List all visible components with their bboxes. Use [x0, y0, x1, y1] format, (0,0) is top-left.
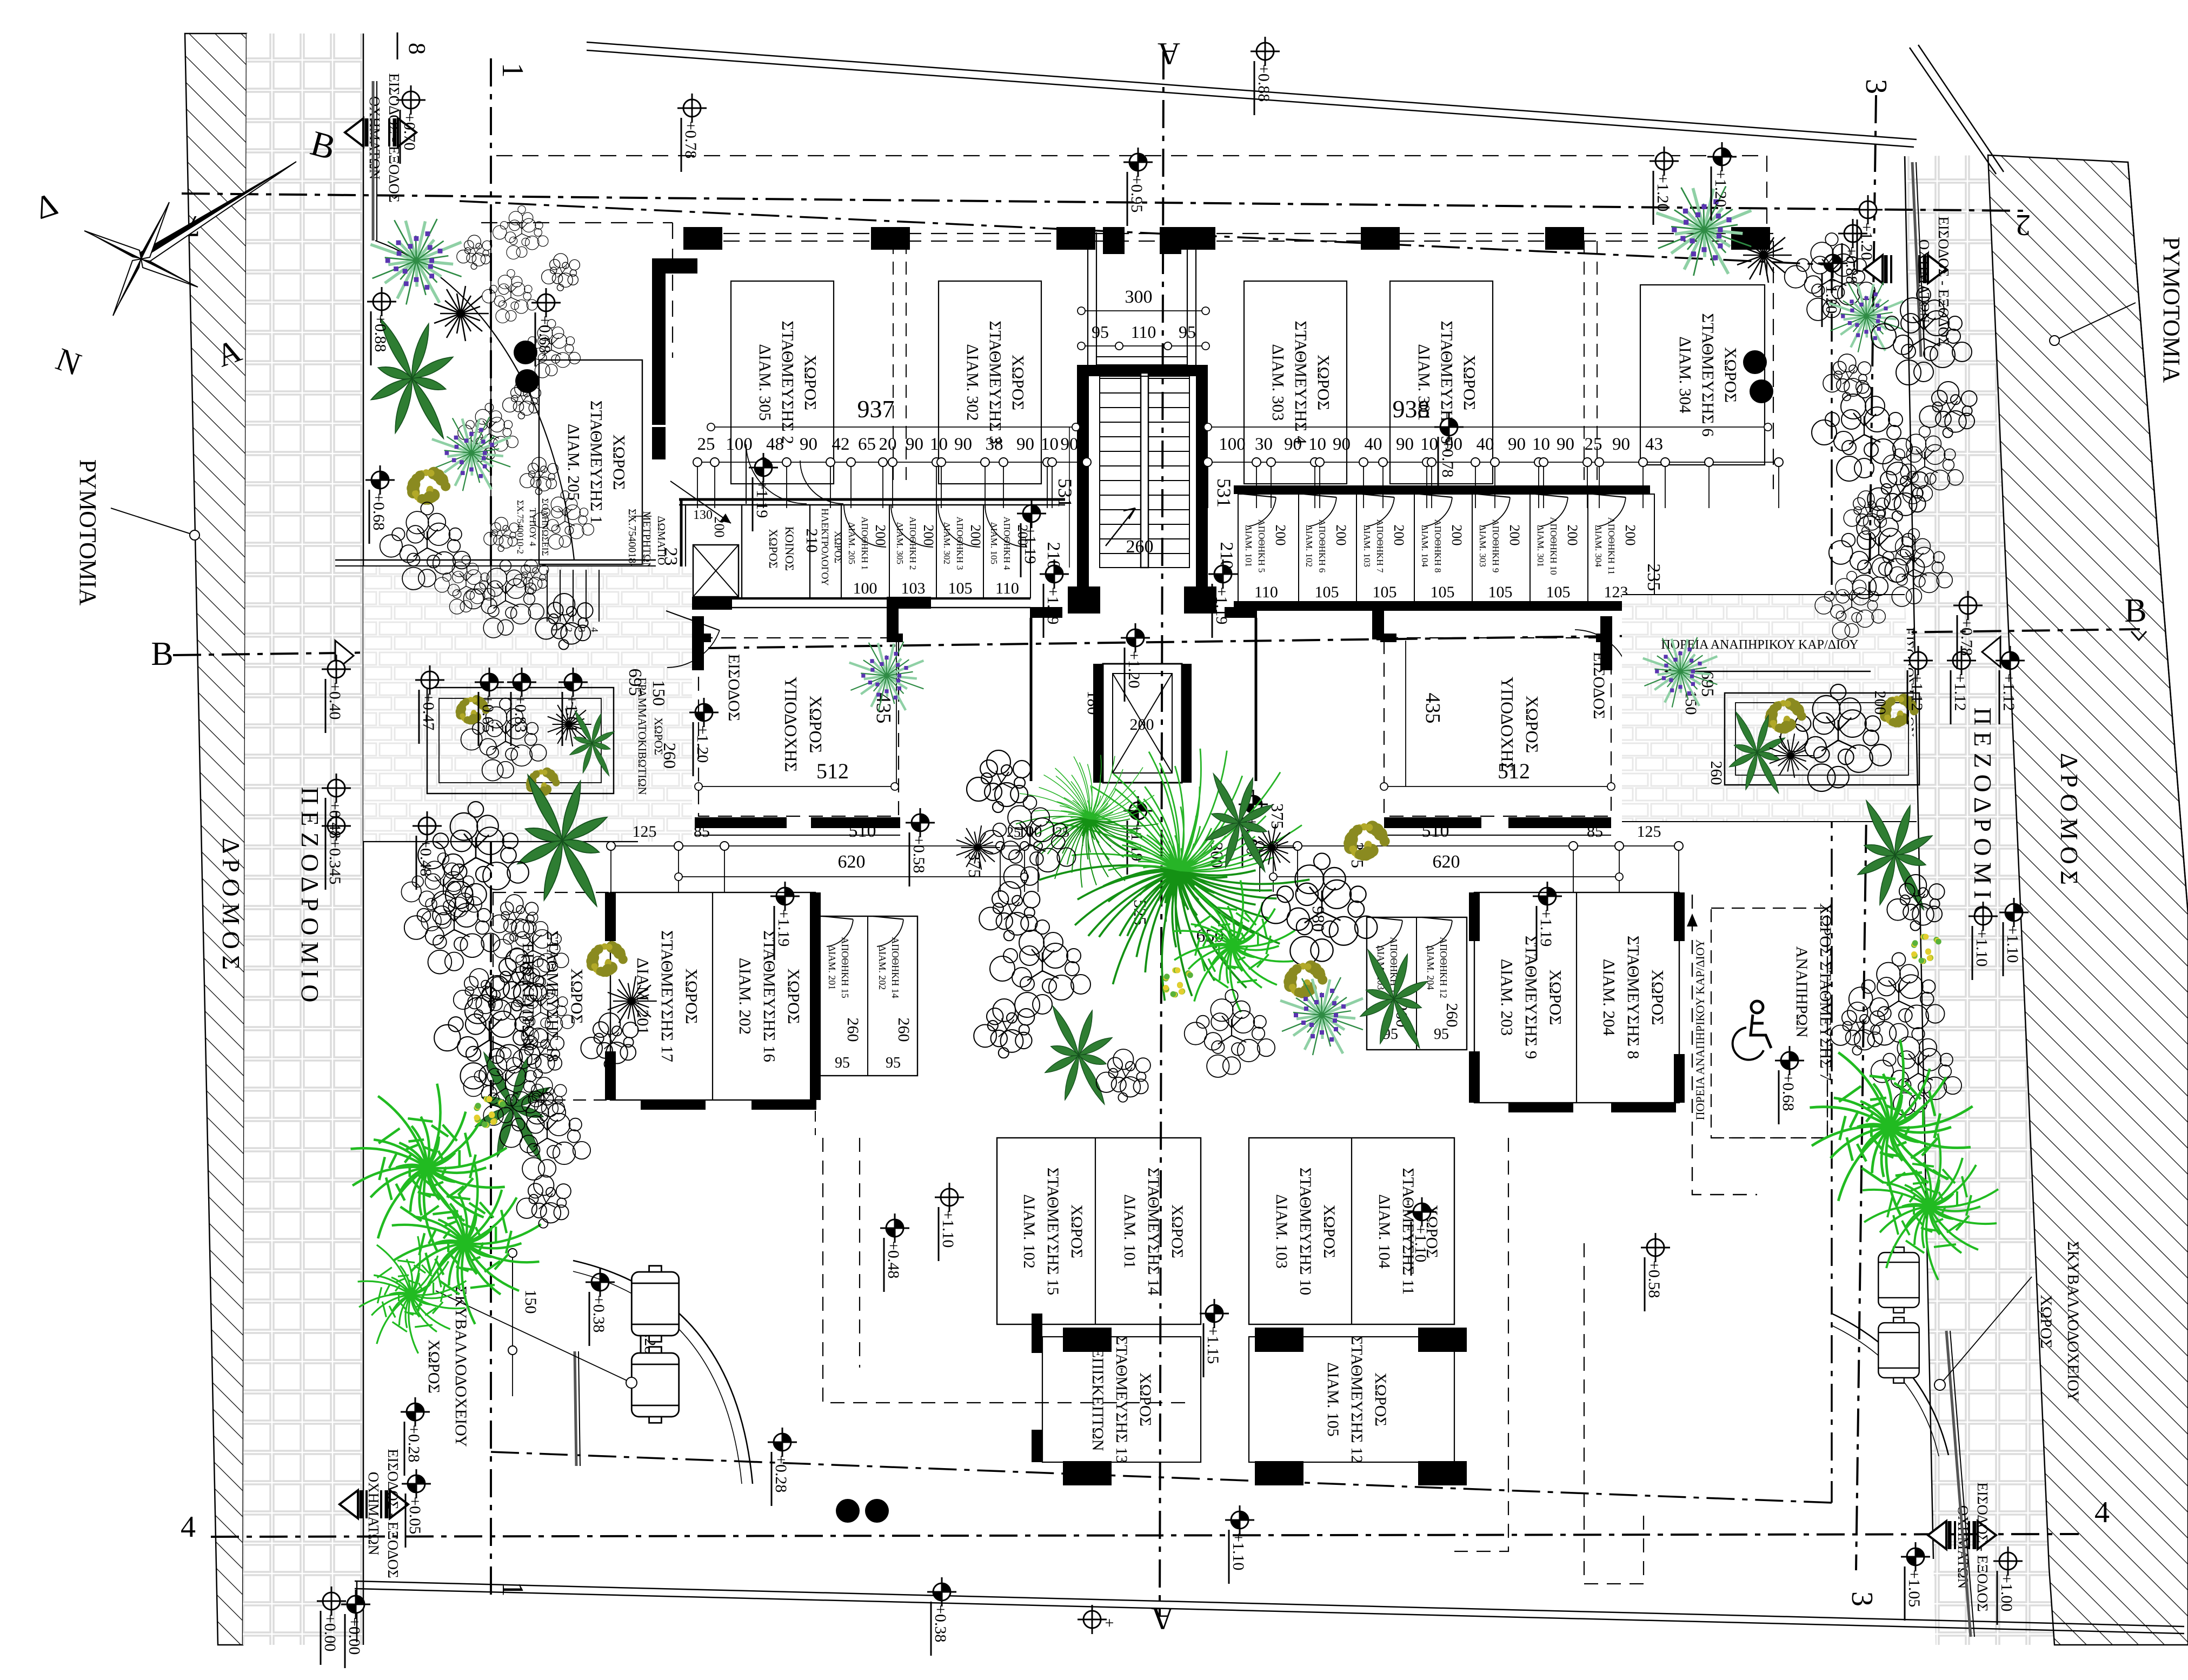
svg-text:ΕΙΣΟΔΟΣ: ΕΙΣΟΔΟΣ	[725, 654, 743, 722]
svg-text:ΔΙΑΜ. 303: ΔΙΑΜ. 303	[1269, 344, 1288, 421]
svg-text:200: 200	[1449, 525, 1465, 546]
svg-text:+1.10: +1.10	[1412, 1225, 1429, 1262]
svg-text:260: 260	[660, 743, 680, 769]
svg-text:105: 105	[1546, 583, 1571, 601]
svg-text:938: 938	[1393, 395, 1430, 423]
svg-text:125: 125	[1637, 823, 1661, 841]
svg-text:ΧΩΡΟΣ: ΧΩΡΟΣ	[784, 968, 803, 1024]
svg-text:105: 105	[1431, 583, 1455, 601]
svg-text:150: 150	[649, 680, 669, 706]
svg-text:ΑΠΟΘΗΚΗ 9: ΑΠΟΘΗΚΗ 9	[1491, 519, 1501, 573]
svg-text:+0.48: +0.48	[884, 1241, 902, 1278]
svg-text:150: 150	[522, 1290, 540, 1314]
svg-text:25: 25	[697, 435, 715, 454]
svg-text:+0.95: +0.95	[1128, 175, 1146, 212]
svg-text:ΔΙΑΜ. 203: ΔΙΑΜ. 203	[1498, 959, 1517, 1036]
svg-text:ΜΕΤΡΗΤΩΝ: ΜΕΤΡΗΤΩΝ	[641, 511, 653, 570]
svg-text:65: 65	[858, 435, 876, 454]
svg-text:130: 130	[693, 508, 713, 522]
svg-text:ΟΧΗΜΑΤΩΝ: ΟΧΗΜΑΤΩΝ	[367, 96, 383, 180]
svg-text:4: 4	[181, 1510, 196, 1544]
svg-text:90: 90	[1284, 435, 1302, 454]
svg-text:+0.78: +0.78	[1958, 618, 1976, 656]
svg-text:200: 200	[711, 517, 727, 538]
svg-text:ΑΠΟΘΗΚΗ 12: ΑΠΟΘΗΚΗ 12	[1438, 937, 1449, 998]
svg-text:695: 695	[625, 669, 645, 696]
svg-text:260: 260	[895, 1018, 913, 1042]
svg-text:512: 512	[1498, 759, 1530, 783]
svg-text:300: 300	[1125, 287, 1153, 307]
svg-text:+0.65: +0.65	[479, 695, 497, 732]
svg-text:+0.48: +0.48	[326, 801, 344, 838]
svg-text:30: 30	[1255, 435, 1273, 454]
svg-text:+1.19: +1.19	[753, 481, 771, 518]
svg-text:ΔΙΑΜ. 103: ΔΙΑΜ. 103	[1362, 525, 1372, 567]
svg-text:260: 260	[1126, 537, 1154, 557]
svg-text:100: 100	[1219, 435, 1246, 454]
svg-text:ΔΙΑΜ. 304: ΔΙΑΜ. 304	[1676, 336, 1695, 414]
svg-text:Π Ε Ζ Ο Δ Ρ Ο Μ Ι Ο: Π Ε Ζ Ο Δ Ρ Ο Μ Ι Ο	[1969, 708, 1997, 923]
svg-text:+1.05: +1.05	[1905, 1570, 1923, 1607]
svg-text:ΣΚΥΒΑΛΛΟΔΟΧΕΙΟΥ: ΣΚΥΒΑΛΛΟΔΟΧΕΙΟΥ	[2064, 1241, 2082, 1402]
svg-text:ΣΤΑΘΜΕΥΣΗΣ 8: ΣΤΑΘΜΕΥΣΗΣ 8	[1624, 936, 1643, 1059]
svg-text:ΧΩΡΟΣ: ΧΩΡΟΣ	[610, 434, 629, 490]
svg-text:ΕΙΣΟΔΟΣ - ΕΞΟΔΟΣ: ΕΙΣΟΔΟΣ - ΕΞΟΔΟΣ	[1974, 1482, 1991, 1611]
svg-text:+1.12: +1.12	[1908, 674, 1926, 711]
svg-text:ΑΠΟΘΗΚΗ 6: ΑΠΟΘΗΚΗ 6	[1317, 519, 1327, 573]
svg-text:2: 2	[2016, 208, 2031, 242]
svg-text:ΧΩΡΟΣ: ΧΩΡΟΣ	[1648, 969, 1667, 1025]
svg-text:3: 3	[1859, 79, 1893, 94]
svg-text:38: 38	[986, 435, 1003, 454]
svg-text:260: 260	[1443, 1003, 1461, 1028]
svg-text:ΧΩΡΟΣ: ΧΩΡΟΣ	[2037, 1295, 2055, 1349]
svg-text:1: 1	[496, 1582, 529, 1597]
svg-text:+1.10: +1.10	[2004, 925, 2021, 963]
svg-text:ΣΧ.7540018-5: ΣΧ.7540018-5	[626, 509, 638, 572]
svg-text:510: 510	[1422, 821, 1449, 841]
svg-text:ΔΙΑΜ. 205: ΔΙΑΜ. 205	[847, 522, 857, 564]
svg-text:ΡΥΜΟΤΟΜΙΑ: ΡΥΜΟΤΟΜΙΑ	[75, 459, 101, 606]
svg-text:Δ Ρ Ο Μ Ο Σ: Δ Ρ Ο Μ Ο Σ	[217, 838, 245, 970]
svg-text:ΧΩΡΟΣ: ΧΩΡΟΣ	[682, 968, 701, 1024]
svg-text:105: 105	[1315, 583, 1339, 601]
svg-text:ΣΤΑΘΜΕΥΣΗΣ 1: ΣΤΑΘΜΕΥΣΗΣ 1	[587, 401, 606, 524]
svg-text:ΕΠΙΣΚΕΠΤΩΝ: ΕΠΙΣΚΕΠΤΩΝ	[1089, 1348, 1107, 1451]
svg-text:ΥΠΟΔΟΧΗΣ: ΥΠΟΔΟΧΗΣ	[781, 677, 801, 772]
svg-text:ΑΝΑΠΗΡΩΝ: ΑΝΑΠΗΡΩΝ	[1793, 946, 1811, 1038]
svg-text:+0.88: +0.88	[371, 315, 389, 352]
svg-text:ΣΤΑΘΜΕΥΣΗΣ 17: ΣΤΑΘΜΕΥΣΗΣ 17	[658, 930, 677, 1062]
svg-text:ΧΩΡΟΣ: ΧΩΡΟΣ	[1320, 1204, 1338, 1258]
svg-text:531: 531	[1213, 478, 1235, 508]
svg-text:ΔΙΑΜ. 104: ΔΙΑΜ. 104	[1375, 1194, 1393, 1269]
svg-text:+1.20: +1.20	[1712, 170, 1730, 207]
svg-text:ΑΠΟΘΗΚΗ 5: ΑΠΟΘΗΚΗ 5	[1256, 519, 1267, 573]
svg-text:10: 10	[1532, 435, 1550, 454]
svg-text:ΔΙΑΜ. 304: ΔΙΑΜ. 304	[1593, 525, 1604, 567]
svg-text:ΔΙΑΜ. 303: ΔΙΑΜ. 303	[1478, 525, 1488, 567]
svg-text:ΑΠΟΘΗΚΗ 7: ΑΠΟΘΗΚΗ 7	[1375, 519, 1385, 573]
svg-text:ΣΤΑΘΜΕΥΣΗΣ 3: ΣΤΑΘΜΕΥΣΗΣ 3	[986, 321, 1005, 444]
svg-text:200: 200	[921, 525, 936, 546]
svg-text:100: 100	[853, 579, 877, 597]
svg-text:ΠΟΡΕΙΑ ΑΝΑΠΗΡΙΚΟΥ ΚΑΡ/ΔΙΟΥ: ΠΟΡΕΙΑ ΑΝΑΠΗΡΙΚΟΥ ΚΑΡ/ΔΙΟΥ	[1693, 939, 1707, 1121]
svg-text:ΔΙΑΜ. 302: ΔΙΑΜ. 302	[963, 344, 982, 421]
svg-text:90: 90	[1016, 435, 1034, 454]
svg-text:435: 435	[1421, 693, 1444, 724]
svg-text:+0.88: +0.88	[1255, 64, 1273, 102]
svg-text:ΣΤΑΘΜΕΥΣΗΣ 9: ΣΤΑΘΜΕΥΣΗΣ 9	[1522, 936, 1541, 1059]
svg-text:ΔΙΑΜ. 205: ΔΙΑΜ. 205	[564, 424, 583, 501]
svg-text:100: 100	[726, 435, 753, 454]
svg-text:200: 200	[1565, 525, 1580, 546]
svg-text:110: 110	[1131, 322, 1156, 342]
svg-text:1: 1	[496, 63, 529, 78]
svg-text:ΣΤΑΘΜΕΥΣΗΣ 13: ΣΤΑΘΜΕΥΣΗΣ 13	[1113, 1336, 1130, 1463]
svg-text:105: 105	[948, 579, 973, 597]
svg-text:+0.58: +0.58	[1645, 1261, 1663, 1298]
svg-text:210: 210	[803, 529, 821, 553]
svg-text:110: 110	[1254, 583, 1278, 601]
svg-text:ΕΙΣΟΔΟΣ - ΕΞΟΔΟΣ: ΕΙΣΟΔΟΣ - ΕΞΟΔΟΣ	[1936, 216, 1952, 345]
svg-text:+0.38: +0.38	[932, 1605, 949, 1642]
svg-text:+0.78: +0.78	[1439, 440, 1457, 477]
svg-text:10: 10	[930, 435, 948, 454]
svg-text:ΔΙΑΜ. 105: ΔΙΑΜ. 105	[989, 522, 999, 564]
svg-text:ΣΟΛΗΝΩΣΕΙΣ: ΣΟΛΗΝΩΣΕΙΣ	[540, 498, 550, 556]
svg-text:ΣΚΥΒΑΛΛΟΔΟΧΕΙΟΥ: ΣΚΥΒΑΛΛΟΔΟΧΕΙΟΥ	[452, 1286, 470, 1447]
svg-text:+0.28: +0.28	[405, 1425, 423, 1462]
svg-text:B: B	[2124, 592, 2146, 629]
svg-text:95: 95	[1434, 1026, 1449, 1043]
svg-text:937: 937	[857, 395, 895, 423]
svg-text:ΡΥΜΟΤΟΜΙΑ: ΡΥΜΟΤΟΜΙΑ	[2158, 237, 2185, 383]
svg-text:ΥΠΟΔΟΧΗΣ: ΥΠΟΔΟΧΗΣ	[1498, 677, 1517, 772]
svg-text:ΔΙΑΜ. 101: ΔΙΑΜ. 101	[1243, 525, 1254, 567]
svg-text:ΣΤΑΘΜΕΥΣΗΣ 4: ΣΤΑΘΜΕΥΣΗΣ 4	[1292, 321, 1311, 444]
svg-text:620: 620	[838, 852, 866, 872]
svg-text:25: 25	[1585, 435, 1602, 454]
svg-text:+1.19: +1.19	[1213, 587, 1231, 624]
svg-text:ΔΙΑΜ. 104: ΔΙΑΜ. 104	[1420, 525, 1430, 567]
svg-text:ΧΩΡΟΣ: ΧΩΡΟΣ	[1068, 1204, 1086, 1258]
svg-text:10: 10	[1308, 435, 1326, 454]
svg-text:ΑΠΟΘΗΚΗ 10: ΑΠΟΘΗΚΗ 10	[1548, 517, 1559, 575]
svg-text:200: 200	[873, 525, 888, 546]
svg-text:ΧΩΡΟΣ ΣΤΑΘΜΕΥΣΗΣ 7: ΧΩΡΟΣ ΣΤΑΘΜΕΥΣΗΣ 7	[1817, 903, 1834, 1081]
svg-text:43: 43	[1645, 435, 1663, 454]
svg-text:48: 48	[766, 435, 784, 454]
svg-text:+1.12: +1.12	[2000, 674, 2018, 711]
svg-text:ΗΛΕΚΤΡΟΛΟΓΟΥ: ΗΛΕΚΤΡΟΛΟΓΟΥ	[820, 508, 830, 585]
svg-text:B: B	[151, 636, 173, 672]
svg-text:85: 85	[694, 823, 710, 841]
svg-text:ΧΩΡΟΣ: ΧΩΡΟΣ	[806, 696, 826, 753]
svg-text:90: 90	[1612, 435, 1630, 454]
svg-text:A: A	[1151, 1601, 1174, 1636]
svg-text:200: 200	[1130, 716, 1154, 734]
svg-text:+0.78: +0.78	[682, 121, 700, 158]
svg-text:3: 3	[1845, 1591, 1879, 1606]
svg-text:ΔΙΑΜ. 101: ΔΙΑΜ. 101	[1121, 1194, 1139, 1269]
svg-text:ΔΙΑΜ. 103: ΔΙΑΜ. 103	[1273, 1194, 1291, 1269]
svg-text:ΔΙΑΜ. 302: ΔΙΑΜ. 302	[942, 522, 952, 564]
svg-text:+1.20: +1.20	[1858, 223, 1876, 260]
svg-text:+0.68: +0.68	[536, 316, 554, 353]
svg-text:90: 90	[1508, 435, 1526, 454]
svg-text:ΧΩΡΟΣ: ΧΩΡΟΣ	[1721, 347, 1740, 403]
svg-text:ΕΙΣΟΔΟΣ - ΕΞΟΔΟΣ: ΕΙΣΟΔΟΣ - ΕΞΟΔΟΣ	[385, 1449, 401, 1578]
svg-text:+0.68: +0.68	[370, 493, 388, 530]
svg-text:260: 260	[844, 1018, 862, 1042]
svg-text:200: 200	[1507, 525, 1522, 546]
svg-text:ΧΩΡΟΣ: ΧΩΡΟΣ	[767, 529, 780, 568]
svg-text:ΧΩΡΟΣ: ΧΩΡΟΣ	[1522, 696, 1542, 753]
svg-text:+0.70: +0.70	[401, 113, 418, 150]
svg-text:ΧΩΡΟΣ: ΧΩΡΟΣ	[801, 355, 820, 410]
svg-text:200: 200	[1871, 691, 1889, 715]
svg-text:235: 235	[1644, 564, 1664, 591]
svg-text:ΔΙΑΜ. 102: ΔΙΑΜ. 102	[1304, 525, 1314, 567]
svg-text:ΔΙΑΜ. 305: ΔΙΑΜ. 305	[895, 522, 905, 564]
svg-text:+1.19: +1.19	[1021, 526, 1039, 564]
svg-text:200: 200	[1333, 525, 1349, 546]
svg-text:+0.40: +0.40	[326, 682, 344, 719]
svg-text:531: 531	[1054, 478, 1076, 508]
svg-text:ΔΙΑΜ. 204: ΔΙΑΜ. 204	[1425, 945, 1436, 990]
svg-text:A: A	[1158, 36, 1180, 71]
svg-text:ΣΤΑΘΜΕΥΣΗΣ 14: ΣΤΑΘΜΕΥΣΗΣ 14	[1145, 1168, 1162, 1295]
svg-text:+: +	[1105, 1614, 1114, 1632]
svg-text:200: 200	[968, 525, 983, 546]
svg-text:10: 10	[1420, 435, 1438, 454]
svg-text:103: 103	[901, 579, 926, 597]
svg-text:90: 90	[1557, 435, 1574, 454]
svg-text:+1.15: +1.15	[1204, 1326, 1222, 1364]
svg-text:+1.10: +1.10	[1229, 1533, 1247, 1570]
svg-text:+0.00: +0.00	[321, 1614, 339, 1651]
svg-text:ΧΩΡΟΣ: ΧΩΡΟΣ	[1460, 355, 1479, 410]
svg-text:2: 2	[563, 628, 574, 632]
svg-text:10: 10	[1041, 435, 1059, 454]
svg-text:ΟΧΗΜΑΤΩΝ: ΟΧΗΜΑΤΩΝ	[365, 1472, 382, 1556]
svg-text:90: 90	[1396, 435, 1414, 454]
svg-text:510: 510	[849, 821, 876, 841]
svg-text:4: 4	[2094, 1496, 2110, 1529]
svg-text:+1.20: +1.20	[694, 725, 711, 763]
svg-text:110: 110	[995, 579, 1019, 597]
svg-text:ΧΩΡΟΣ: ΧΩΡΟΣ	[1314, 355, 1333, 410]
svg-text:ΧΩΡΟΣ: ΧΩΡΟΣ	[1136, 1372, 1154, 1426]
svg-text:ΧΩΡΟΣ: ΧΩΡΟΣ	[1546, 969, 1565, 1025]
svg-text:ΔΙΑΜ. 204: ΔΙΑΜ. 204	[1600, 959, 1619, 1036]
svg-text:95: 95	[886, 1055, 901, 1071]
svg-text:620: 620	[1433, 852, 1460, 872]
svg-text:8: 8	[404, 43, 430, 55]
svg-text:95: 95	[835, 1055, 850, 1071]
svg-text:ΕΙΣΟΔΟΣ: ΕΙΣΟΔΟΣ	[1590, 652, 1608, 719]
svg-text:+1.20: +1.20	[1654, 174, 1672, 211]
svg-text:Π Ε Ζ Ο Δ Ρ Ο Μ Ι Ο: Π Ε Ζ Ο Δ Ρ Ο Μ Ι Ο	[296, 787, 324, 1003]
svg-text:ΔΙΑΜ. 301: ΔΙΑΜ. 301	[1535, 525, 1546, 567]
svg-text:200: 200	[1391, 525, 1407, 546]
svg-text:+1.10: +1.10	[939, 1210, 957, 1248]
svg-text:+1.20: +1.20	[1125, 651, 1143, 688]
svg-text:40: 40	[1477, 435, 1494, 454]
svg-text:ΔΙΑΜ. 105: ΔΙΑΜ. 105	[1324, 1362, 1342, 1437]
svg-text:42: 42	[832, 435, 850, 454]
svg-text:+0.58: +0.58	[910, 836, 928, 873]
svg-text:ΑΠΟΘΗΚΗ 15: ΑΠΟΘΗΚΗ 15	[840, 937, 850, 998]
svg-text:200: 200	[1273, 525, 1288, 546]
svg-text:+0.83: +0.83	[511, 695, 529, 732]
svg-text:ΔΙΑΜ. 202: ΔΙΑΜ. 202	[736, 958, 755, 1035]
svg-text:ΑΠΟΘΗΚΗ 8: ΑΠΟΘΗΚΗ 8	[1433, 519, 1443, 573]
svg-text:+0.28: +0.28	[772, 1455, 790, 1492]
svg-text:Δ Ρ Ο Μ Ο Σ: Δ Ρ Ο Μ Ο Σ	[2056, 753, 2083, 885]
svg-text:+1.10: +1.10	[1973, 929, 1991, 966]
svg-text:ΤΥΠΟΥ 4: ΤΥΠΟΥ 4	[528, 508, 538, 546]
svg-text:ΔΙΑΜ. 102: ΔΙΑΜ. 102	[1020, 1194, 1038, 1269]
svg-text:ΣΤΑΘΜΕΥΣΗΣ 15: ΣΤΑΘΜΕΥΣΗΣ 15	[1044, 1168, 1062, 1295]
svg-text:+0.345: +0.345	[326, 839, 344, 884]
svg-text:ΧΩΡΟΣ: ΧΩΡΟΣ	[1009, 355, 1028, 410]
svg-text:+0.48: +0.48	[417, 839, 435, 876]
svg-text:+0.38: +0.38	[590, 1295, 608, 1332]
svg-text:+1.01: +1.01	[563, 695, 581, 732]
svg-text:ΔΙΑΜ. 201: ΔΙΑΜ. 201	[827, 945, 837, 990]
svg-text:95: 95	[1092, 322, 1109, 342]
svg-text:+1.00: +1.00	[1998, 1574, 2016, 1611]
svg-text:95: 95	[1179, 322, 1196, 342]
svg-text:125: 125	[633, 823, 657, 841]
svg-text:40: 40	[1365, 435, 1382, 454]
svg-text:90: 90	[800, 435, 817, 454]
svg-text:ΑΠΟΘΗΚΗ 11: ΑΠΟΘΗΚΗ 11	[1606, 517, 1617, 575]
svg-text:ΣΤΑΘΜΕΥΣΗΣ 6: ΣΤΑΘΜΕΥΣΗΣ 6	[1699, 313, 1718, 437]
svg-text:90: 90	[1333, 435, 1351, 454]
svg-text:90: 90	[954, 435, 972, 454]
svg-text:90: 90	[906, 435, 923, 454]
svg-text:512: 512	[816, 759, 849, 783]
svg-text:+0.00: +0.00	[345, 1617, 363, 1655]
svg-text:ΣΧ.7540010-2: ΣΧ.7540010-2	[515, 500, 526, 554]
svg-text:ΚΟΙΝΟΣ: ΚΟΙΝΟΣ	[783, 526, 796, 571]
svg-text:ΔΙΑΜ. 305: ΔΙΑΜ. 305	[756, 344, 775, 421]
svg-text:ΣΤΑΘΜΕΥΣΗΣ 2: ΣΤΑΘΜΕΥΣΗΣ 2	[779, 321, 797, 444]
svg-text:+0.05: +0.05	[406, 1497, 424, 1534]
svg-text:105: 105	[1373, 583, 1397, 601]
svg-text:20: 20	[879, 435, 897, 454]
svg-text:105: 105	[1488, 583, 1513, 601]
svg-text:ΧΩΡΟΣ: ΧΩΡΟΣ	[1372, 1372, 1389, 1426]
svg-text:ΧΩΡΟΣ: ΧΩΡΟΣ	[425, 1339, 443, 1394]
svg-text:ΔΙΑΜ. 202: ΔΙΑΜ. 202	[877, 945, 888, 990]
svg-text:ΑΠΟΘΗΚΗ 14: ΑΠΟΘΗΚΗ 14	[890, 937, 901, 998]
svg-text:ΣΤΑΘΜΕΥΣΗΣ 16: ΣΤΑΘΜΕΥΣΗΣ 16	[760, 930, 779, 1062]
svg-text:ΧΩΡΟΣ: ΧΩΡΟΣ	[1168, 1204, 1186, 1258]
svg-text:ΣΤΑΘΜΕΥΣΗΣ 12: ΣΤΑΘΜΕΥΣΗΣ 12	[1348, 1336, 1366, 1463]
svg-text:85: 85	[1587, 823, 1603, 841]
svg-text:180: 180	[1084, 691, 1102, 715]
svg-text:+0.47: +0.47	[420, 693, 437, 730]
svg-text:260: 260	[1707, 761, 1725, 785]
svg-text:+1.12: +1.12	[1951, 674, 1969, 711]
svg-text:200: 200	[1622, 525, 1638, 546]
svg-text:ΣΤΑΘΜΕΥΣΗΣ 10: ΣΤΑΘΜΕΥΣΗΣ 10	[1296, 1168, 1314, 1295]
svg-text:4: 4	[589, 628, 600, 632]
svg-text:+0.68: +0.68	[1779, 1074, 1797, 1111]
svg-text:+1.19: +1.19	[1044, 587, 1062, 624]
